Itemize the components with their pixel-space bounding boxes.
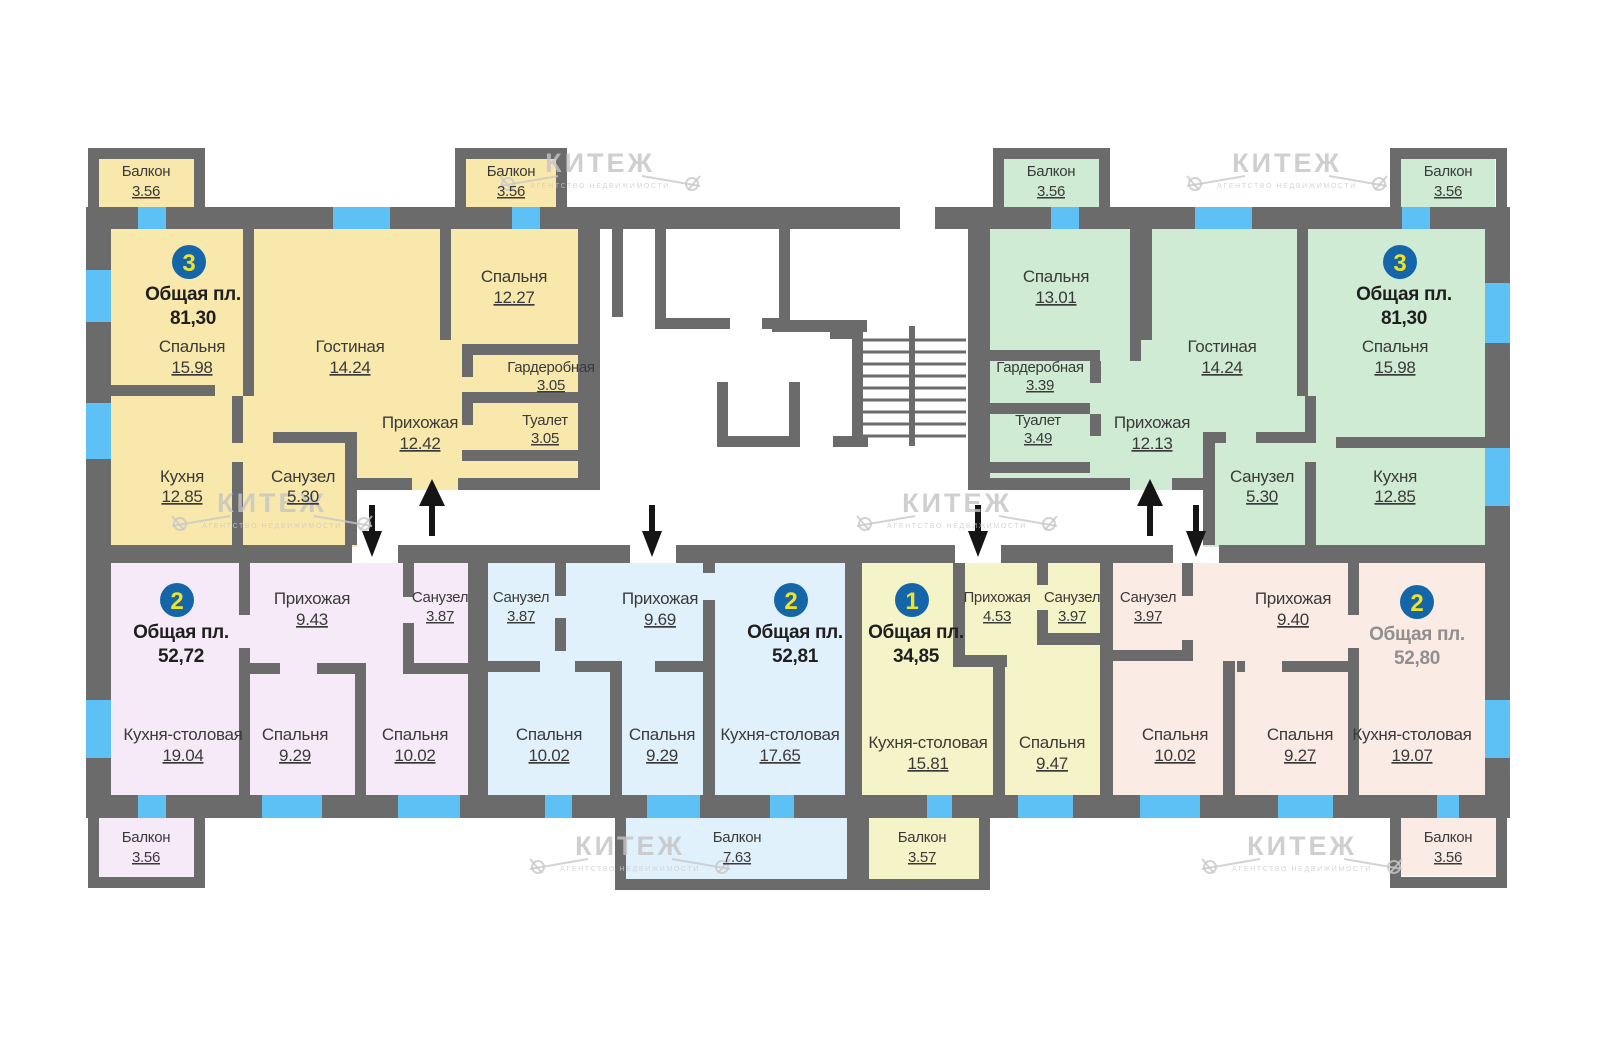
total-area-label: Общая пл.: [1356, 284, 1452, 305]
room-label-area: 15.81: [907, 754, 948, 773]
watermark-subtitle: АГЕНТСТВО НЕДВИЖИМОСТИ: [887, 523, 1027, 530]
floor-plan-svg: КИТЕЖ АГЕНТСТВО НЕДВИЖИМОСТИ КИТЕЖ АГЕНТ…: [0, 0, 1599, 1038]
room-label-area: 9.29: [646, 746, 678, 765]
total-area-label: Общая пл.: [747, 622, 843, 643]
total-area-label: Общая пл.: [868, 622, 964, 643]
room-label-area: 3.49: [1024, 430, 1052, 447]
room-label-area: 3.56: [497, 183, 525, 200]
room-label-name: Спальня: [1023, 267, 1089, 286]
total-area-value: 81,30: [1381, 308, 1427, 329]
room-label-area: 14.24: [329, 358, 370, 377]
room-label-area: 10.02: [394, 746, 435, 765]
watermark-brand: КИТЕЖ: [545, 148, 655, 178]
room-label-name: Спальня: [382, 725, 448, 744]
room-label-name: Спальня: [262, 725, 328, 744]
watermark-subtitle: АГЕНТСТВО НЕДВИЖИМОСТИ: [530, 183, 670, 190]
room-label-name: Спальня: [629, 725, 695, 744]
room-label-area: 3.87: [507, 608, 535, 625]
room-label-name: Туалет: [522, 412, 568, 429]
room-label-area: 9.43: [296, 610, 328, 629]
room-label-name: Спальня: [1019, 733, 1085, 752]
room-label-name: Спальня: [1267, 725, 1333, 744]
room-label-area: 4.53: [983, 608, 1011, 625]
room-label-area: 5.30: [287, 487, 319, 506]
room-label-area: 19.07: [1391, 746, 1432, 765]
room-label-name: Санузел: [1044, 589, 1100, 606]
room-label-area: 15.98: [1374, 358, 1415, 377]
room-label-area: 3.56: [132, 849, 160, 866]
room-label-area: 10.02: [1154, 746, 1195, 765]
room-label-area: 12.27: [493, 288, 534, 307]
room-label-name: Прихожая: [1114, 413, 1190, 432]
room-label-area: 3.05: [537, 377, 565, 394]
room-label-name: Санузел: [1230, 467, 1294, 486]
watermark-subtitle: АГЕНТСТВО НЕДВИЖИМОСТИ: [1217, 183, 1357, 190]
room-label-area: 12.85: [161, 487, 202, 506]
room-label-area: 12.42: [399, 434, 440, 453]
watermark-brand: КИТЕЖ: [575, 831, 685, 861]
watermark-brand: КИТЕЖ: [1232, 148, 1342, 178]
watermark-subtitle: АГЕНТСТВО НЕДВИЖИМОСТИ: [560, 866, 700, 873]
room-label-name: Спальня: [1362, 337, 1428, 356]
total-area-value: 52,80: [1394, 648, 1440, 669]
room-label-area: 9.27: [1284, 746, 1316, 765]
room-label-name: Гардеробная: [507, 359, 595, 376]
room-label-name: Балкон: [122, 163, 171, 180]
total-area-value: 81,30: [170, 308, 216, 329]
room-label-area: 9.47: [1036, 754, 1068, 773]
watermark: КИТЕЖ АГЕНТСТВО НЕДВИЖИМОСТИ: [1187, 148, 1387, 190]
room-label-area: 3.56: [1037, 183, 1065, 200]
room-label-name: Гостиная: [316, 337, 385, 356]
room-label-area: 9.40: [1277, 610, 1309, 629]
room-label-name: Балкон: [1424, 163, 1473, 180]
room-label-name: Спальня: [516, 725, 582, 744]
floor-plan: КИТЕЖ АГЕНТСТВО НЕДВИЖИМОСТИ КИТЕЖ АГЕНТ…: [0, 0, 1599, 1038]
room-label-name: Кухня-столовая: [868, 733, 987, 752]
total-area-value: 52,81: [772, 646, 819, 667]
room-label-name: Прихожая: [1255, 589, 1331, 608]
room-label-name: Кухня-столовая: [1352, 725, 1471, 744]
room-label-name: Санузел: [493, 589, 549, 606]
room-label-name: Прихожая: [622, 589, 698, 608]
watermark-subtitle: АГЕНТСТВО НЕДВИЖИМОСТИ: [1232, 866, 1372, 873]
room-label-area: 9.29: [279, 746, 311, 765]
room-label-area: 9.69: [644, 610, 676, 629]
room-label-name: Прихожая: [963, 589, 1030, 606]
room-label-name: Балкон: [122, 829, 171, 846]
room-label-area: 3.56: [132, 183, 160, 200]
room-label-name: Кухня-столовая: [720, 725, 839, 744]
room-label-name: Балкон: [713, 829, 762, 846]
room-label-name: Кухня-столовая: [123, 725, 242, 744]
watermark: КИТЕЖ АГЕНТСТВО НЕДВИЖИМОСТИ: [1202, 831, 1402, 873]
room-label-name: Гостиная: [1188, 337, 1257, 356]
room-count: 2: [784, 588, 797, 615]
room-label-name: Прихожая: [274, 589, 350, 608]
room-label-name: Кухня: [1373, 467, 1417, 486]
room-label-name: Туалет: [1015, 412, 1061, 429]
room-label-area: 3.87: [426, 608, 454, 625]
room-label-area: 17.65: [759, 746, 800, 765]
room-label-area: 19.04: [162, 746, 203, 765]
watermark-brand: КИТЕЖ: [902, 488, 1012, 518]
room-label-area: 5.30: [1246, 487, 1278, 506]
total-area-value: 52,72: [158, 646, 204, 667]
room-label-area: 12.13: [1131, 434, 1172, 453]
room-label-area: 10.02: [528, 746, 569, 765]
room-label-name: Спальня: [159, 337, 225, 356]
room-count: 3: [1393, 250, 1406, 277]
room-label-name: Санузел: [1120, 589, 1176, 606]
total-area-value: 34,85: [893, 646, 940, 667]
room-label-name: Спальня: [481, 267, 547, 286]
room-label-area: 13.01: [1035, 288, 1076, 307]
room-label-area: 3.05: [531, 430, 559, 447]
room-label-name: Кухня: [160, 467, 204, 486]
watermark-brand: КИТЕЖ: [1247, 831, 1357, 861]
room-label-area: 3.97: [1058, 608, 1086, 625]
room-label-area: 14.24: [1201, 358, 1242, 377]
room-label-area: 3.56: [1434, 183, 1462, 200]
apartment-right2-balcony-fill: [1401, 818, 1496, 876]
room-label-area: 3.97: [1134, 608, 1162, 625]
room-label-area: 3.57: [908, 849, 936, 866]
room-label-name: Санузел: [412, 589, 468, 606]
room-count: 1: [905, 588, 918, 615]
total-area-label: Общая пл.: [145, 284, 241, 305]
room-label-area: 7.63: [723, 849, 751, 866]
room-label-name: Гардеробная: [996, 359, 1084, 376]
total-area-label: Общая пл.: [133, 622, 229, 643]
room-count: 3: [182, 250, 195, 277]
room-label-name: Спальня: [1142, 725, 1208, 744]
room-label-area: 3.56: [1434, 849, 1462, 866]
room-label-name: Балкон: [898, 829, 947, 846]
apartment-left2-balcony-fill: [99, 818, 194, 877]
room-label-name: Балкон: [487, 163, 536, 180]
total-area-label: Общая пл.: [1369, 624, 1465, 645]
room-count: 2: [170, 588, 183, 615]
room-count: 2: [1410, 590, 1423, 617]
room-label-name: Прихожая: [382, 413, 458, 432]
room-label-area: 12.85: [1374, 487, 1415, 506]
room-label-name: Балкон: [1424, 829, 1473, 846]
room-label-area: 15.98: [171, 358, 212, 377]
watermark-subtitle: АГЕНТСТВО НЕДВИЖИМОСТИ: [202, 523, 342, 530]
room-label-name: Балкон: [1027, 163, 1076, 180]
room-label-name: Санузел: [271, 467, 335, 486]
room-label-area: 3.39: [1026, 377, 1054, 394]
